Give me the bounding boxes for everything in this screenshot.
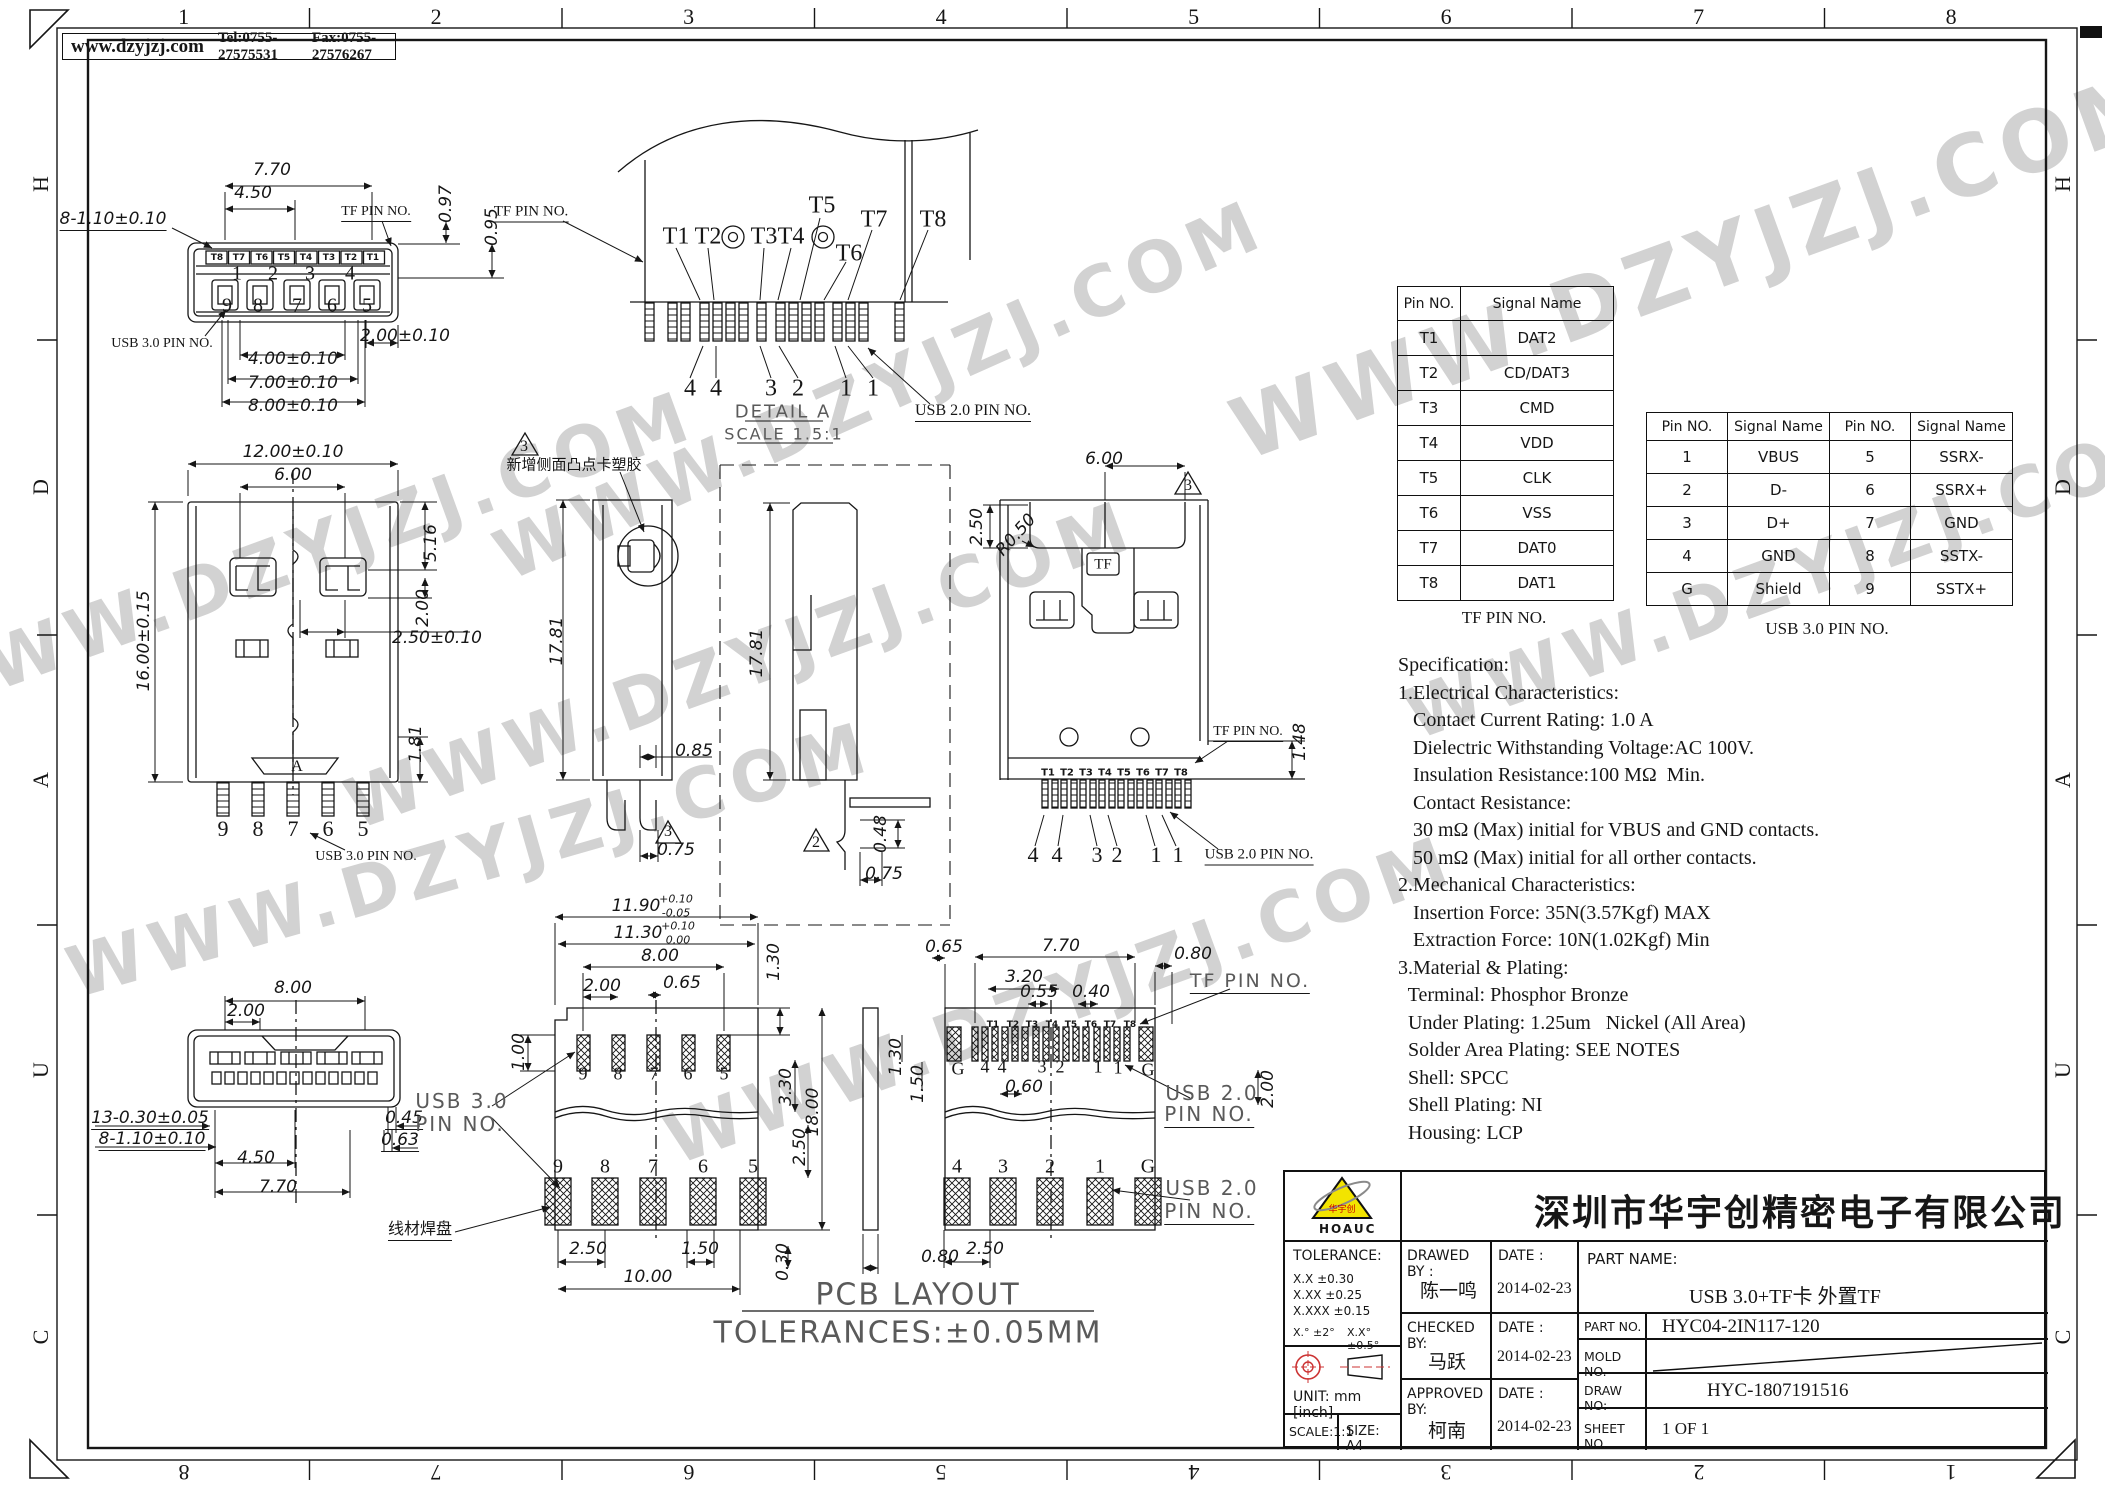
dim-label: 1.30	[886, 1038, 906, 1076]
table-row: 2D-6SSRX+	[1647, 474, 2013, 507]
specification: Specification:1.Electrical Characteristi…	[1398, 652, 1819, 1147]
dim-label: T3	[751, 224, 778, 251]
dim-label: 8-1.10±0.10	[99, 1129, 206, 1151]
table-row: T6VSS	[1398, 496, 1614, 531]
dim-label: 11.90	[612, 896, 661, 916]
table-cell: CLK	[1461, 461, 1614, 496]
dim-label: USB 2.0 PIN NO.	[1205, 847, 1314, 866]
dim-label: 1.50	[908, 1065, 928, 1103]
tolerance-row-1: X.X ±0.30	[1293, 1272, 1354, 1286]
table-cell: T2	[1398, 356, 1461, 391]
dim-label: 5	[720, 1064, 729, 1085]
drawing-sheet: WWW.DZYJZJ.COMWWW.DZYJZJ.COMWWW.DZYJZJ.C…	[0, 0, 2105, 1488]
approved-by-cell: APPROVED BY: 柯南	[1402, 1380, 1492, 1450]
dim-label: T4	[300, 253, 312, 263]
table-cell: Shield	[1728, 573, 1830, 606]
table-row: T8DAT1	[1398, 566, 1614, 601]
approved-by-name: 柯南	[1428, 1416, 1466, 1443]
table-row: 1VBUS5SSRX-	[1647, 441, 2013, 474]
table-cell: T7	[1398, 531, 1461, 566]
dim-label: 5.16	[421, 524, 441, 562]
tolerance-title: TOLERANCE:	[1293, 1248, 1382, 1264]
dim-label: 0.80	[921, 1247, 959, 1267]
dim-label: 1	[1094, 1057, 1103, 1078]
table-header-row: Pin NO.Signal Name	[1398, 287, 1614, 321]
tolerance-row-2: X.XX ±0.25	[1293, 1288, 1362, 1302]
spec-line: 1.Electrical Characteristics:	[1398, 680, 1819, 708]
table-cell: T6	[1398, 496, 1461, 531]
dim-label: T4	[1046, 1020, 1058, 1030]
dim-label: 8-1.10±0.10	[60, 209, 167, 231]
dim-label: 1.48	[1290, 723, 1310, 761]
dim-label: 8	[253, 816, 264, 842]
table-header-row: Pin NO.Signal NamePin NO.Signal Name	[1647, 413, 2013, 441]
table-cell: 1	[1647, 441, 1728, 474]
table-cell: G	[1647, 573, 1728, 606]
dim-label: 8.00	[641, 946, 679, 966]
table-row: T7DAT0	[1398, 531, 1614, 566]
dim-label: T1	[367, 253, 379, 263]
scale-cell: SCALE:1:1	[1285, 1415, 1339, 1450]
dim-label: 0.85	[675, 741, 713, 761]
dim-label: 4	[1052, 842, 1063, 868]
table-cell: VDD	[1461, 426, 1614, 461]
dim-label: PIN NO.	[1164, 1102, 1254, 1128]
drawed-by-cell: DRAWED BY : 陈一鸣	[1402, 1242, 1492, 1314]
dim-label: 10.00	[624, 1267, 673, 1287]
dim-label: 1	[1151, 842, 1162, 868]
spec-line: 30 mΩ (Max) initial for VBUS and GND con…	[1398, 817, 1819, 845]
dim-label: 2.00	[1258, 1070, 1278, 1108]
spec-line: Contact Resistance:	[1398, 790, 1819, 818]
company-cell: 深圳市华宇创精密电子有限公司	[1402, 1172, 2048, 1242]
dim-label: 6.00	[1085, 449, 1123, 469]
company-logo-icon: 华宇创	[1307, 1174, 1377, 1222]
dim-label: 7.00±0.10	[248, 373, 338, 393]
dim-label: 4	[710, 376, 722, 403]
table-row: 3D+7GND	[1647, 507, 2013, 540]
draw-no-value: HYC-1807191516	[1707, 1380, 1848, 1402]
table-cell: 2	[1647, 474, 1728, 507]
date-value-3: 2014-02-23	[1497, 1418, 1572, 1436]
dim-label: T5	[809, 193, 836, 220]
dim-label: -0.05	[662, 907, 690, 920]
website-text: www.dzyjzj.com	[71, 36, 204, 58]
dim-label: 0.60	[1005, 1077, 1043, 1097]
table-row: T2CD/DAT3	[1398, 356, 1614, 391]
spec-line: Under Plating: 1.25um Nickel (All Area)	[1398, 1010, 1819, 1038]
dim-label: T8	[1124, 1020, 1136, 1030]
dim-label: +0.10	[661, 920, 695, 933]
table-row: 4GND8SSTX-	[1647, 540, 2013, 573]
tolerance-row-3: X.XXX ±0.15	[1293, 1304, 1370, 1318]
dim-label: TF PIN NO.	[1190, 970, 1310, 994]
dim-label: 8.00	[274, 978, 312, 998]
usb3-pin-table: Pin NO.Signal NamePin NO.Signal Name1VBU…	[1646, 412, 2013, 606]
dim-label: 0.75	[657, 840, 695, 860]
table-row: T1DAT2	[1398, 321, 1614, 356]
dim-label: USB 2.0 PIN NO.	[915, 402, 1031, 422]
dim-label: T8	[211, 253, 223, 263]
table-cell: DAT0	[1461, 531, 1614, 566]
column-header: Pin NO.	[1647, 413, 1728, 441]
table-cell: SSTX+	[1911, 573, 2013, 606]
dim-label: T7	[233, 253, 245, 263]
spec-line: Insertion Force: 35N(3.57Kgf) MAX	[1398, 900, 1819, 928]
spec-line: 2.Mechanical Characteristics:	[1398, 872, 1819, 900]
table-cell: VSS	[1461, 496, 1614, 531]
mold-no-label-cell: MOLD NO.	[1579, 1340, 1647, 1374]
part-name-value: USB 3.0+TF卡 外置TF	[1689, 1280, 1881, 1309]
tel-text: Tel:0755-27575531	[218, 30, 298, 64]
approved-by-label: APPROVED BY:	[1407, 1386, 1490, 1418]
dim-label: 2	[812, 834, 820, 852]
spec-line: 50 mΩ (Max) initial for all orther conta…	[1398, 845, 1819, 873]
dim-label: T1	[1041, 768, 1055, 779]
checked-by-name: 马跃	[1428, 1347, 1466, 1374]
column-header: Signal Name	[1728, 413, 1830, 441]
dim-label: 16.00±0.15	[134, 591, 154, 692]
dim-label: T2	[1007, 1020, 1019, 1030]
checked-date-cell: DATE : 2014-02-23	[1492, 1314, 1579, 1380]
dim-label: 2.00	[413, 589, 433, 627]
table-cell: 3	[1647, 507, 1728, 540]
dim-label: 7	[288, 816, 299, 842]
tf-pin-table: Pin NO.Signal NameT1DAT2T2CD/DAT3T3CMDT4…	[1397, 286, 1614, 601]
tf-table: Pin NO.Signal NameT1DAT2T2CD/DAT3T3CMDT4…	[1397, 286, 1614, 601]
dim-label: T4	[1098, 768, 1112, 779]
dim-label: 4	[998, 1057, 1007, 1078]
spec-line: 3.Material & Plating:	[1398, 955, 1819, 983]
dim-label: T2	[345, 253, 357, 263]
column-header: Signal Name	[1911, 413, 2013, 441]
dim-label: DETAIL A	[735, 402, 832, 423]
dim-label: 12.00±0.10	[243, 442, 344, 462]
dim-label: 11.30	[614, 923, 663, 943]
dim-label: 1	[232, 263, 242, 286]
dim-label: T3	[1079, 768, 1093, 779]
dim-label: 9	[579, 1064, 588, 1085]
dim-label: 4	[981, 1057, 990, 1078]
dim-label: 4	[952, 1156, 962, 1179]
dim-label: T5	[278, 253, 290, 263]
sheet-no-label-cell: SHEET NO.	[1579, 1409, 1647, 1450]
dim-label: 0.65	[925, 937, 963, 957]
dim-label: G	[952, 1059, 965, 1080]
spec-line: Dielectric Withstanding Voltage:AC 100V.	[1398, 735, 1819, 763]
column-header: Signal Name	[1461, 287, 1614, 321]
dim-label: T1	[663, 224, 690, 251]
title-block: 华宇创 HOAUC 深圳市华宇创精密电子有限公司 TOLERANCE: X.X …	[1283, 1170, 2046, 1448]
part-no-label: PART NO.	[1584, 1319, 1641, 1334]
checked-by-cell: CHECKED BY: 马跃	[1402, 1314, 1492, 1380]
dim-label: 2	[1056, 1057, 1065, 1078]
tolerance-cell: TOLERANCE: X.X ±0.30 X.XX ±0.25 X.XXX ±0…	[1285, 1242, 1402, 1347]
dim-label: 8	[253, 295, 263, 318]
dim-label: T2	[1060, 768, 1074, 779]
dim-label: 3	[1184, 477, 1192, 495]
tolerance-deg-1: X.° ±2°	[1293, 1326, 1335, 1339]
table-cell: 7	[1830, 507, 1911, 540]
dim-label: 2.50	[569, 1239, 607, 1259]
projection-symbol-icon	[1290, 1351, 1396, 1383]
dim-label: 6	[684, 1064, 693, 1085]
dim-label: T7	[1104, 1020, 1116, 1030]
dim-label: 3	[305, 263, 315, 286]
dim-label: T7	[861, 207, 888, 234]
dim-label: 5	[748, 1156, 758, 1179]
logo-mark-text: 华宇创	[1328, 1203, 1355, 1215]
dim-label: 4	[684, 376, 696, 403]
table-cell: DAT2	[1461, 321, 1614, 356]
table-cell: T5	[1398, 461, 1461, 496]
dim-label: 1	[840, 376, 852, 403]
dim-label: 1.00	[509, 1033, 529, 1071]
spec-line: Specification:	[1398, 652, 1819, 680]
dim-label: T4	[778, 224, 805, 251]
dim-label: G	[1141, 1156, 1155, 1179]
dim-label: 2	[268, 263, 278, 286]
dim-label: 2.00	[227, 1001, 265, 1021]
approved-date-cell: DATE : 2014-02-23	[1492, 1380, 1579, 1450]
column-header: Pin NO.	[1398, 287, 1461, 321]
dim-label: 9	[553, 1156, 563, 1179]
dim-label: +0.10	[659, 893, 693, 906]
dim-label: 2.00	[583, 976, 621, 996]
dim-label: TF PIN NO.	[1213, 724, 1283, 742]
dim-label: T2	[695, 224, 722, 251]
part-name-label: PART NAME:	[1587, 1250, 1678, 1268]
spec-line: Shell Plating: NI	[1398, 1092, 1819, 1120]
dim-label: PIN NO.	[415, 1112, 505, 1136]
dim-label: 6.00	[274, 465, 312, 485]
draw-no-value-cell: HYC-1807191516	[1647, 1374, 2048, 1409]
dim-label: 2	[1112, 842, 1123, 868]
table-cell: 8	[1830, 540, 1911, 573]
table-cell: SSRX+	[1911, 474, 2013, 507]
date-label-2: DATE :	[1498, 1320, 1544, 1336]
spec-line: Contact Current Rating: 1.0 A	[1398, 707, 1819, 735]
dim-label: 7.70	[253, 160, 291, 180]
part-no-label-cell: PART NO.	[1579, 1314, 1647, 1340]
dim-label: 0.30	[773, 1243, 793, 1281]
dim-label: TF PIN NO.	[494, 204, 569, 223]
sheet-no-value-cell: 1 OF 1	[1647, 1409, 2048, 1450]
dim-label: R0.50	[992, 510, 1040, 560]
dim-label: 0.63	[381, 1130, 419, 1152]
table-row: T5CLK	[1398, 461, 1614, 496]
dim-label: 3	[664, 823, 672, 841]
sheet-no-value: 1 OF 1	[1662, 1419, 1709, 1439]
dim-label: 2.50±0.10	[392, 628, 482, 648]
dim-label: 1	[1173, 842, 1184, 868]
dim-label: 6	[698, 1156, 708, 1179]
dim-label: SCALE 1.5:1	[724, 425, 843, 444]
table-cell: T3	[1398, 391, 1461, 426]
dim-label: 4.50	[234, 183, 272, 203]
sheet-no-label: SHEET NO.	[1584, 1421, 1645, 1451]
dim-label: T7	[1155, 768, 1169, 779]
date-value-2: 2014-02-23	[1497, 1348, 1572, 1366]
dim-label: USB 3.0	[415, 1089, 508, 1113]
column-header: Pin NO.	[1830, 413, 1911, 441]
dim-label: 1	[1114, 1058, 1123, 1079]
dim-label: A	[291, 758, 303, 776]
dim-label: 8.00±0.10	[248, 396, 338, 416]
dim-label: 3	[998, 1156, 1008, 1179]
projection-cell: UNIT: mm [inch]	[1285, 1347, 1402, 1415]
dim-label: 0.00	[666, 934, 691, 947]
table-cell: T1	[1398, 321, 1461, 356]
dim-label: 17.81	[747, 629, 767, 678]
dim-label: T8	[1174, 768, 1188, 779]
dim-label: T6	[1085, 1020, 1097, 1030]
logo-cell: 华宇创 HOAUC	[1285, 1172, 1402, 1242]
dim-label: TF PIN NO.	[341, 204, 411, 222]
drawed-by-name: 陈一鸣	[1420, 1276, 1477, 1303]
table-row: GShield9SSTX+	[1647, 573, 2013, 606]
dim-label: 3	[1092, 842, 1103, 868]
dim-label: 7.70	[259, 1177, 297, 1197]
dim-label: 7	[650, 1064, 659, 1085]
dim-label: 0.48	[871, 815, 891, 853]
dim-label: T8	[920, 207, 947, 234]
spec-line: Solder Area Plating: SEE NOTES	[1398, 1037, 1819, 1065]
table-cell: CMD	[1461, 391, 1614, 426]
date-label-3: DATE :	[1498, 1386, 1544, 1402]
table-cell: DAT1	[1461, 566, 1614, 601]
table-cell: D+	[1728, 507, 1830, 540]
dim-label: 1.30	[764, 943, 784, 981]
dim-label: 2.50	[966, 1239, 1004, 1259]
part-no-value: HYC04-2IN117-120	[1662, 1316, 1820, 1338]
dim-label: 7.70	[1042, 936, 1080, 956]
dim-label: 2.50	[790, 1128, 810, 1166]
dim-label: 0.80	[1174, 944, 1212, 964]
fax-text: Fax:0755-27576267	[312, 30, 395, 64]
mold-no-blank-slash	[1647, 1340, 2048, 1374]
dim-label: USB 3.0 PIN NO.	[315, 849, 417, 865]
dim-label: 6	[323, 816, 334, 842]
dim-label: 新增侧面凸点卡塑胶	[506, 454, 641, 475]
table-cell: T4	[1398, 426, 1461, 461]
dim-label: T1	[987, 1020, 999, 1030]
dim-label: 1	[1095, 1156, 1105, 1179]
table-cell: 5	[1830, 441, 1911, 474]
dim-label: 4	[1028, 842, 1039, 868]
dim-label: 5	[362, 295, 372, 318]
dim-label: 4.00±0.10	[248, 349, 338, 369]
dim-label: T6	[256, 253, 268, 263]
dim-label: T3	[1026, 1020, 1038, 1030]
dim-label: T3	[323, 253, 335, 263]
header-bar: www.dzyjzj.com Tel:0755-27575531 Fax:075…	[62, 33, 396, 60]
dim-label: 7	[648, 1156, 658, 1179]
dim-label: USB 3.0 PIN NO.	[111, 336, 213, 352]
size-cell: SIZE: A4	[1339, 1415, 1402, 1450]
date-label-1: DATE :	[1498, 1248, 1544, 1264]
dim-label: TF	[1094, 557, 1112, 574]
dim-label: 2.50	[967, 508, 987, 546]
dim-label: 0.40	[1072, 982, 1110, 1002]
dim-label: 0.97	[436, 185, 456, 223]
table-cell: VBUS	[1728, 441, 1830, 474]
part-no-value-cell: HYC04-2IN117-120	[1647, 1314, 2048, 1340]
tf-table-caption: TF PIN NO.	[1397, 608, 1611, 628]
dim-label: 2	[792, 376, 804, 403]
dim-label: 7	[292, 295, 302, 318]
table-cell: 4	[1647, 540, 1728, 573]
table-row: T3CMD	[1398, 391, 1614, 426]
table-cell: CD/DAT3	[1461, 356, 1614, 391]
mold-no-value-cell	[1647, 1340, 2048, 1374]
table-cell: GND	[1911, 507, 2013, 540]
part-name-cell: PART NAME: USB 3.0+TF卡 外置TF	[1579, 1242, 2048, 1314]
table-cell: T8	[1398, 566, 1461, 601]
table-cell: SSTX-	[1911, 540, 2013, 573]
draw-no-label-cell: DRAW NO:	[1579, 1374, 1647, 1409]
dim-label: 0.75	[865, 864, 903, 884]
drawed-date-cell: DATE : 2014-02-23	[1492, 1242, 1579, 1314]
dim-label: 1.50	[681, 1239, 719, 1259]
dim-label: 17.81	[547, 617, 567, 666]
dim-label: 线材焊盘	[388, 1215, 452, 1241]
dim-label: 1.81	[406, 725, 426, 763]
date-value-1: 2014-02-23	[1497, 1280, 1572, 1298]
dim-label: 0.55	[1020, 982, 1058, 1002]
size-label: SIZE: A4	[1346, 1424, 1400, 1454]
dim-label: T5	[1065, 1020, 1077, 1030]
dim-label: T6	[1136, 768, 1150, 779]
dim-label: T5	[1117, 768, 1131, 779]
table-cell: 9	[1830, 573, 1911, 606]
dim-label: 13-0.30±0.05	[91, 1108, 209, 1130]
dim-label: T6	[836, 241, 863, 268]
dim-label: TOLERANCES:±0.05MM	[714, 1316, 1103, 1351]
table-cell: SSRX-	[1911, 441, 2013, 474]
dim-label: 5	[358, 816, 369, 842]
spec-line: Shell: SPCC	[1398, 1065, 1819, 1093]
table-cell: GND	[1728, 540, 1830, 573]
table-row: T4VDD	[1398, 426, 1614, 461]
dim-label: PCB LAYOUT	[815, 1278, 1020, 1313]
dim-label: 8	[614, 1064, 623, 1085]
company-name: 深圳市华宇创精密电子有限公司	[1530, 1184, 2070, 1236]
dim-label: 8	[600, 1156, 610, 1179]
spec-line: Housing: LCP	[1398, 1120, 1819, 1148]
dim-label: 2.00±0.10	[360, 326, 450, 346]
dim-label: 4.50	[237, 1148, 275, 1168]
usb3-table: Pin NO.Signal NamePin NO.Signal Name1VBU…	[1646, 412, 2013, 606]
dim-label: 9	[218, 816, 229, 842]
dim-label: 9	[222, 295, 232, 318]
spec-line: Insulation Resistance:100 MΩ Min.	[1398, 762, 1819, 790]
dim-label: 0.65	[663, 973, 701, 993]
spec-line: Extraction Force: 10N(1.02Kgf) Min	[1398, 927, 1819, 955]
dim-label: 3.30	[776, 1068, 796, 1106]
dim-label: 1	[867, 376, 879, 403]
spec-line: Terminal: Phosphor Bronze	[1398, 982, 1819, 1010]
dim-label: 3	[1038, 1057, 1047, 1078]
dim-label: 4	[345, 263, 355, 286]
dim-label: USB 2.0	[1165, 1176, 1258, 1200]
table-cell: D-	[1728, 474, 1830, 507]
dim-label: 6	[327, 295, 337, 318]
dim-label: G	[1142, 1060, 1155, 1081]
dim-label: 2	[1045, 1156, 1055, 1179]
dim-label: 3	[765, 376, 777, 403]
dim-label: PIN NO.	[1164, 1199, 1254, 1225]
